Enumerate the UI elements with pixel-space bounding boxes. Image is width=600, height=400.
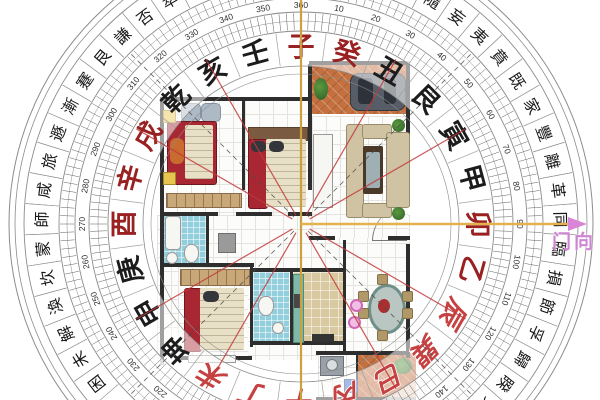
- mountain-char: 酉: [110, 211, 141, 238]
- luopan-compass: 1020304050607080901001101201301401501601…: [0, 0, 600, 400]
- hexagram-char: 師: [32, 211, 51, 227]
- hexagram-char: 蒙: [33, 240, 53, 258]
- feng-shui-floorplan-diagram: 1020304050607080901001101201301401501601…: [0, 0, 600, 400]
- hexagram-char: 咸: [34, 181, 55, 199]
- hexagram-char: 革: [547, 181, 568, 199]
- degree-label: 80: [511, 180, 523, 191]
- degree-label: 270: [77, 217, 87, 231]
- door-direction-label: 门向: [552, 227, 596, 254]
- degree-label: 10: [333, 3, 344, 15]
